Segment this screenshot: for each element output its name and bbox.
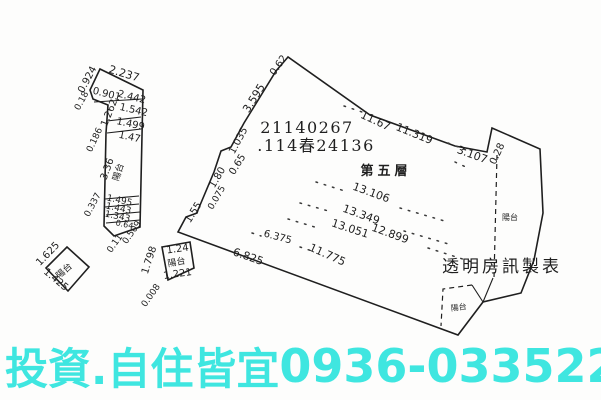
measurement-label: 1.798	[140, 245, 159, 276]
measurement-label: 12.899	[370, 221, 411, 246]
measurement-label: 1.625	[34, 240, 62, 268]
measurement-label: 1.24	[166, 243, 190, 257]
measurement-label: 11.319	[394, 121, 435, 147]
measurement-label: 1.221	[163, 267, 193, 282]
main-floor-outline	[178, 57, 543, 335]
measurement-label: 11.775	[307, 241, 347, 269]
measurement-label: 0.62	[268, 53, 290, 78]
measurement-label: 1.47	[117, 130, 141, 145]
measurement-label: 0.18	[73, 90, 91, 113]
measurement-label: 3.107	[455, 143, 489, 166]
measurement-label: 0.186	[85, 126, 105, 154]
registry-number: 21140267	[260, 118, 353, 137]
measurement-label: 0.075	[206, 184, 228, 211]
measurement-label: 11.67	[358, 108, 392, 133]
balcony-label: 陽台	[502, 212, 518, 222]
measurement-label: 0.11	[106, 233, 126, 255]
measurement-label: 1.035	[227, 126, 250, 156]
measurement-label: 0.337	[83, 191, 104, 218]
publisher-watermark: 透明房訊製表	[442, 257, 562, 277]
ad-banner: 投資.自住皆宜0936-033522	[0, 332, 601, 400]
measurement-label: 0.65	[227, 152, 248, 177]
right-balcony-end-line	[483, 278, 493, 302]
balcony-label: 陽台	[450, 301, 467, 313]
ad-slogan: 投資.自住皆宜	[5, 335, 279, 397]
ad-phone-number: 0936-033522	[279, 339, 601, 393]
measurement-label: 3.595	[240, 81, 268, 115]
floorplan-page: 21140267.114春24136第五層透明房訊製表0.6211.6711.3…	[0, 0, 601, 400]
measurement-label: 0.008	[140, 282, 163, 309]
floor-label: 第五層	[360, 163, 411, 179]
measurement-label: 6.825	[231, 245, 265, 268]
bottom-balcony-side-line	[472, 285, 483, 302]
measurement-label: 6.375	[262, 229, 293, 247]
measurement-label: 13.106	[351, 180, 392, 205]
measurement-label: 0.28	[488, 142, 507, 167]
case-number: .114春24136	[257, 136, 375, 155]
